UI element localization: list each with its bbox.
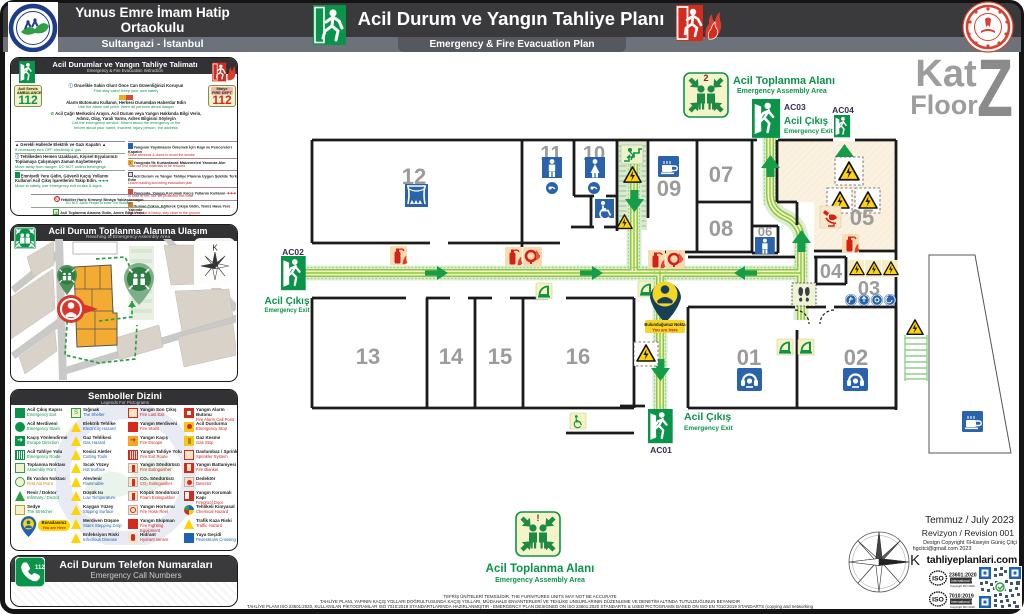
svg-text:AC02: AC02 xyxy=(282,247,304,257)
svg-text:Emergency Exit: Emergency Exit xyxy=(784,128,834,135)
svg-text:Acil Çıkış: Acil Çıkış xyxy=(784,116,829,127)
svg-text:AC01: AC01 xyxy=(650,445,672,455)
svg-text:05: 05 xyxy=(850,205,874,230)
svg-text:Emergency Exit: Emergency Exit xyxy=(684,425,734,432)
svg-text:09: 09 xyxy=(657,176,681,201)
svg-text:13: 13 xyxy=(356,344,380,369)
svg-text:Acil Çıkış: Acil Çıkış xyxy=(684,411,731,423)
svg-text:06: 06 xyxy=(758,224,772,239)
svg-text:International Standart: International Standart xyxy=(951,579,977,583)
svg-text:You are Here: You are Here xyxy=(652,328,678,333)
svg-text:Emergency Assembly Area: Emergency Assembly Area xyxy=(737,88,827,95)
svg-text:Z: Z xyxy=(977,43,1013,134)
svg-text:ISO: ISO xyxy=(932,597,944,604)
svg-text:01: 01 xyxy=(737,345,761,370)
svg-text:02: 02 xyxy=(844,345,868,370)
svg-text:15: 15 xyxy=(488,344,512,369)
svg-text:International Standart: International Standart xyxy=(951,600,977,604)
svg-text:Emergency Exit: Emergency Exit xyxy=(264,308,309,314)
svg-text:AC03: AC03 xyxy=(784,102,806,112)
svg-text:16: 16 xyxy=(566,344,590,369)
svg-text:Emergency Assembly Area: Emergency Assembly Area xyxy=(495,577,585,584)
svg-text:Bulunduğunuz Nokta: Bulunduğunuz Nokta xyxy=(644,322,686,327)
svg-text:Acil Çıkış: Acil Çıkış xyxy=(264,296,309,307)
svg-text:Copyright ISO 2019 - copyright: Copyright ISO 2019 - copyright@iso.org xyxy=(950,605,977,609)
svg-text:14: 14 xyxy=(439,344,464,369)
svg-text:Copyright ISO 2020 - copyright: Copyright ISO 2020 - copyright@iso.org xyxy=(950,584,977,588)
svg-text:AC04: AC04 xyxy=(832,105,854,115)
svg-text:!: ! xyxy=(537,513,540,523)
svg-text:04: 04 xyxy=(820,261,843,283)
svg-text:08: 08 xyxy=(709,216,733,241)
svg-text:Acil Toplanma Alanı: Acil Toplanma Alanı xyxy=(486,563,595,575)
svg-text:07: 07 xyxy=(709,162,733,187)
svg-text:Floor: Floor xyxy=(910,90,978,120)
svg-text:Kat: Kat xyxy=(915,53,977,95)
svg-text:2: 2 xyxy=(703,73,708,83)
svg-text:ISO: ISO xyxy=(932,576,944,583)
svg-text:Acil Toplanma Alanı: Acil Toplanma Alanı xyxy=(733,75,835,87)
